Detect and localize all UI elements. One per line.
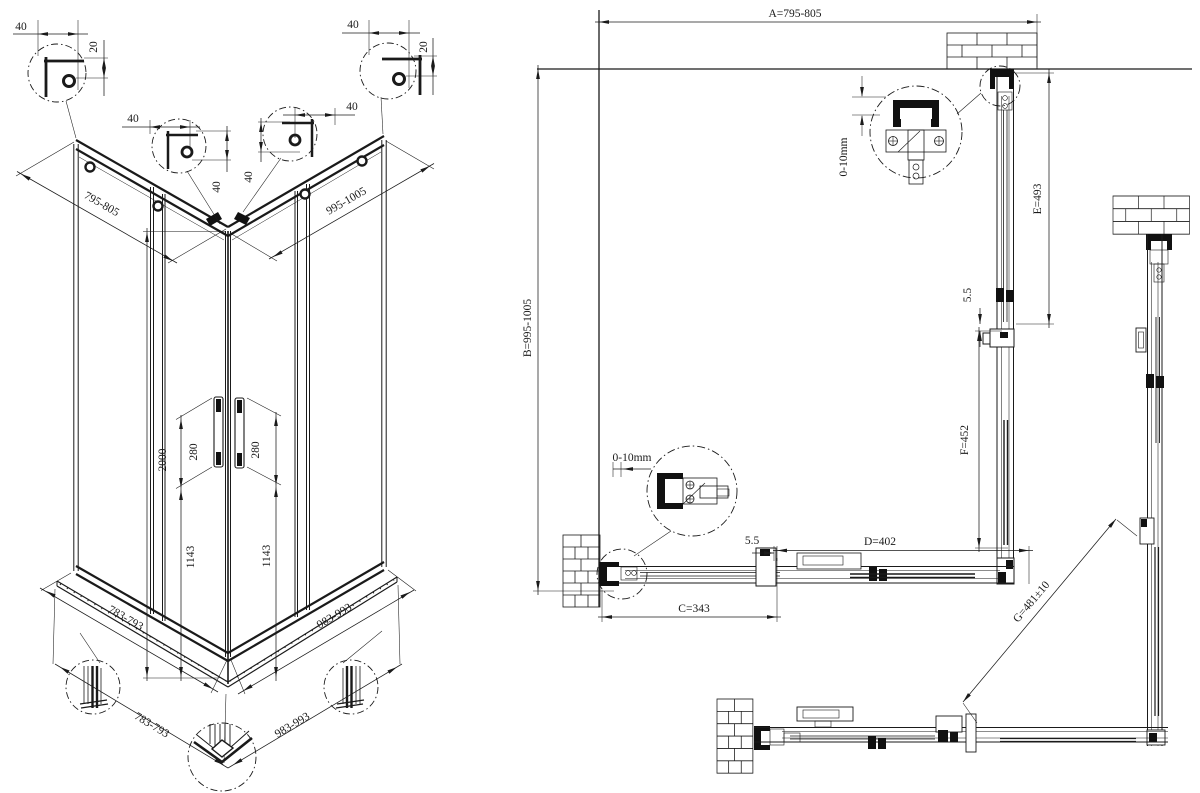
dim-d: D=402 xyxy=(864,536,896,548)
dim-handle-height-left: 1143 xyxy=(185,545,197,568)
dim-height-2000: 2000 xyxy=(157,448,169,471)
right-panel-rail xyxy=(983,69,1014,584)
dim-c: C=343 xyxy=(678,603,710,615)
detail-circle-bottom-right xyxy=(324,660,378,714)
plan-dimensions xyxy=(533,14,1137,723)
wall-hatch-lower-assembly xyxy=(717,699,753,773)
technical-drawing-page: 795-805 995-1005 2000 280 1143 280 1143 … xyxy=(0,0,1200,793)
plan-view: 0-10mm 0-10mm xyxy=(522,8,1192,773)
dim-b: B=995-1005 xyxy=(522,299,534,357)
detail-mr-height: 40 xyxy=(243,171,255,183)
detail-tl-height: 20 xyxy=(88,41,100,53)
detail-circle-mid-left: 40 40 xyxy=(122,113,231,193)
detail-tr-height: 20 xyxy=(418,41,430,53)
callout-leader-left xyxy=(634,531,671,556)
dim-handle-length-right: 280 xyxy=(250,441,262,459)
detail-mr-width: 40 xyxy=(346,101,358,113)
left-isometric-view: 795-805 995-1005 2000 280 1143 280 1143 … xyxy=(13,19,437,791)
dim-top-width-right: 995-1005 xyxy=(324,185,368,218)
detail-circle-top-right: 40 20 xyxy=(342,19,437,99)
dim-base-width-left: 783-793 xyxy=(132,710,171,740)
dimension-arrowheads xyxy=(20,20,1117,767)
detail-circle-bottom-left xyxy=(66,660,120,714)
detail-ml-height: 40 xyxy=(211,181,223,193)
dim-e: E=493 xyxy=(1032,183,1044,214)
lower-panel-assembly xyxy=(754,707,1168,752)
detail-ml-width: 40 xyxy=(127,113,139,125)
wall-adjust-top-label: 0-10mm xyxy=(838,137,850,176)
dim-gap-bottom: 5.5 xyxy=(745,535,760,547)
bottom-panel-rail xyxy=(599,548,1014,586)
dim-f: F=452 xyxy=(959,425,971,455)
detail-circle-top-left: 40 20 xyxy=(13,20,108,102)
dim-handle-height-right: 1143 xyxy=(261,544,273,567)
detail-tl-width: 40 xyxy=(15,21,27,33)
dim-base-width-right: 983-993 xyxy=(273,710,312,740)
wall-hatch-far-right xyxy=(1113,196,1190,234)
far-right-panel-assembly xyxy=(1136,234,1172,746)
wall-adjust-left-label: 0-10mm xyxy=(613,452,652,464)
room-walls xyxy=(537,10,1192,607)
shower-enclosure-drawing: 795-805 995-1005 2000 280 1143 280 1143 … xyxy=(0,0,1200,793)
detail-tr-width: 40 xyxy=(347,19,359,31)
roller-icons xyxy=(86,157,367,227)
top-rails xyxy=(76,136,384,240)
dim-a: A=795-805 xyxy=(768,8,821,20)
detail-circle-wall-profile-left: 0-10mm xyxy=(613,446,737,536)
wall-hatch-top-right xyxy=(947,33,1037,69)
wall-hatch-bottom-left xyxy=(563,535,600,607)
dim-top-width-left: 795-805 xyxy=(82,190,121,220)
callout-leader-top xyxy=(957,93,981,114)
door-handles xyxy=(214,397,244,468)
frame-stiles xyxy=(74,140,386,684)
dim-gap-right: 5.5 xyxy=(962,288,974,303)
dim-handle-length-left: 280 xyxy=(188,443,200,461)
detail-circle-wall-profile-top: 0-10mm xyxy=(838,76,962,184)
